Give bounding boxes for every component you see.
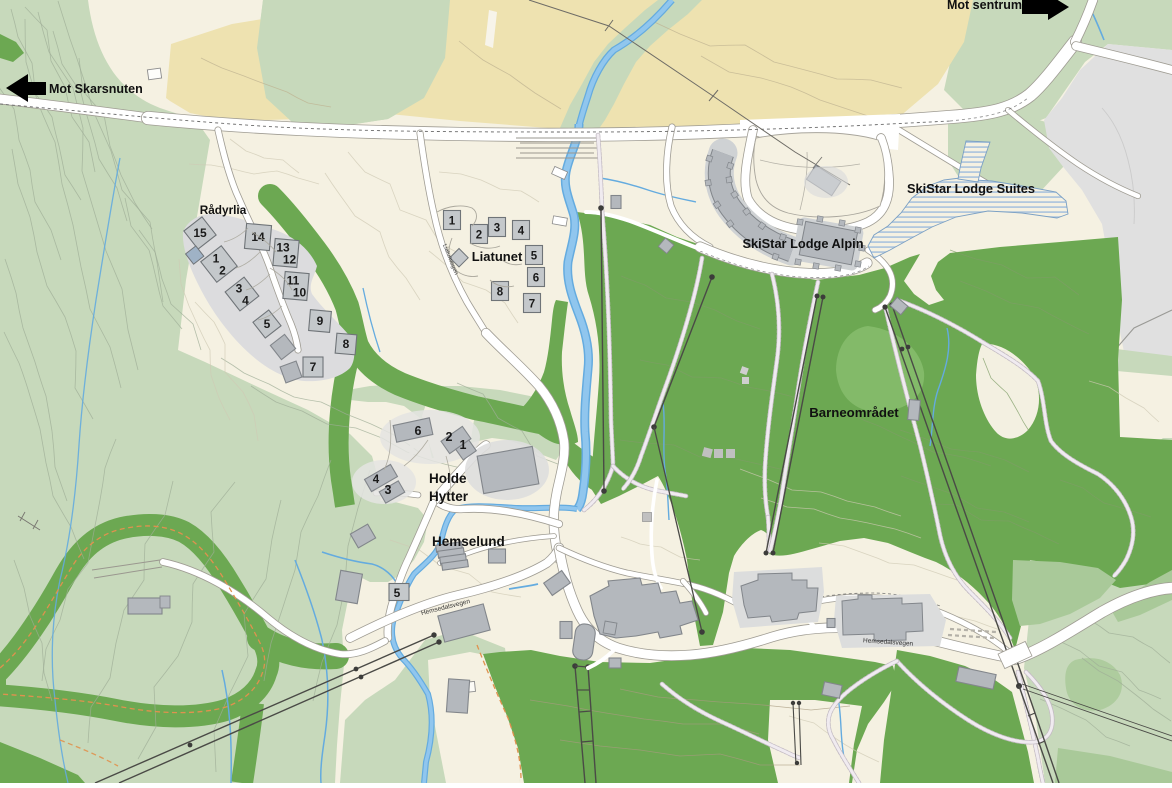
- svg-text:15: 15: [193, 226, 207, 240]
- svg-text:10: 10: [293, 286, 307, 300]
- svg-text:3: 3: [494, 222, 500, 234]
- svg-text:Mot sentrum: Mot sentrum: [947, 0, 1022, 12]
- svg-text:Barneområdet: Barneområdet: [809, 405, 899, 420]
- svg-text:12: 12: [283, 253, 297, 267]
- svg-text:6: 6: [415, 424, 422, 438]
- svg-text:2: 2: [219, 264, 226, 278]
- svg-text:SkiStar Lodge Alpin: SkiStar Lodge Alpin: [742, 236, 863, 251]
- svg-text:2: 2: [476, 229, 482, 241]
- svg-text:14: 14: [251, 230, 265, 244]
- svg-text:1: 1: [449, 215, 456, 227]
- svg-text:Rådyrlia: Rådyrlia: [200, 203, 247, 217]
- svg-text:Holde: Holde: [429, 471, 467, 486]
- svg-text:9: 9: [317, 314, 324, 328]
- svg-text:2: 2: [446, 430, 453, 444]
- svg-text:5: 5: [394, 586, 401, 600]
- svg-text:1: 1: [460, 438, 467, 452]
- svg-text:Hytter: Hytter: [429, 489, 469, 504]
- svg-text:6: 6: [533, 272, 539, 284]
- svg-text:SkiStar Lodge Suites: SkiStar Lodge Suites: [907, 181, 1035, 196]
- svg-text:4: 4: [242, 294, 249, 308]
- svg-text:Mot Skarsnuten: Mot Skarsnuten: [49, 82, 143, 96]
- svg-text:8: 8: [497, 286, 504, 298]
- svg-text:5: 5: [531, 250, 538, 262]
- svg-text:7: 7: [529, 298, 535, 310]
- svg-text:5: 5: [264, 317, 271, 331]
- svg-text:3: 3: [385, 483, 392, 497]
- svg-text:7: 7: [310, 360, 317, 374]
- svg-text:Hemselund: Hemselund: [432, 534, 505, 549]
- svg-text:4: 4: [373, 474, 380, 486]
- svg-text:4: 4: [518, 225, 525, 237]
- svg-text:8: 8: [343, 337, 350, 351]
- svg-text:Liatunet: Liatunet: [472, 249, 523, 264]
